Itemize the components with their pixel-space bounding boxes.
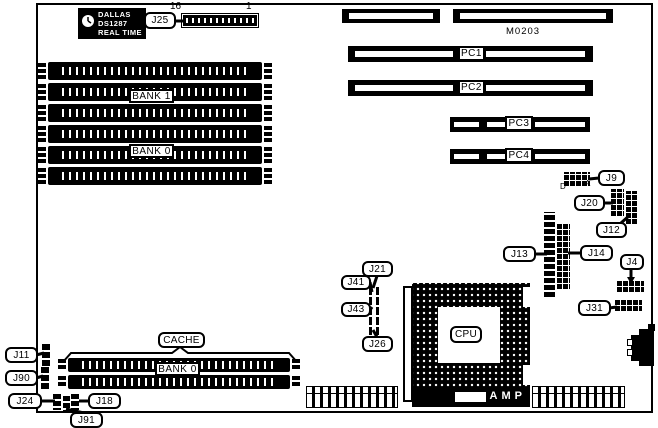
pin-1-label: 1 <box>246 1 252 12</box>
j14-label: J14 <box>580 245 613 261</box>
j43-label: J43 <box>341 302 371 317</box>
j4-arrow <box>627 277 635 284</box>
j26-label: J26 <box>362 336 393 352</box>
pin-16-label: 16 <box>170 1 181 12</box>
pc4-label: PC4 <box>505 148 533 163</box>
j31-label: J31 <box>578 300 611 316</box>
cpu-label: CPU <box>450 326 482 343</box>
motherboard-diagram: DALLAS DS1287 REAL TIME 16 1 J25 BANK 1 … <box>0 0 658 428</box>
pin-a-label: A <box>585 179 590 188</box>
j18-label: J18 <box>88 393 121 409</box>
j91-label: J91 <box>70 412 103 428</box>
j25-label: J25 <box>144 12 176 29</box>
model-label: M0203 <box>506 26 540 37</box>
bank0-label: BANK 0 <box>129 144 174 158</box>
cache-label: CACHE <box>158 332 205 348</box>
pc1-label: PC1 <box>458 46 485 61</box>
j9-label: J9 <box>598 170 625 186</box>
j20-label: J20 <box>574 195 605 211</box>
bank1-label: BANK 1 <box>129 89 174 103</box>
cache-brace <box>63 347 297 362</box>
pin-d-label: D <box>560 182 566 191</box>
cache-bank0-label: BANK 0 <box>155 362 200 376</box>
callout-pointers <box>0 0 658 428</box>
j11-label: J11 <box>5 347 38 363</box>
j41-label: J41 <box>341 275 371 290</box>
j24-label: J24 <box>8 393 42 409</box>
pc2-label: PC2 <box>458 80 485 95</box>
j12-label: J12 <box>596 222 627 238</box>
j90-label: J90 <box>5 370 38 386</box>
pc3-label: PC3 <box>505 116 533 131</box>
j13-label: J13 <box>503 246 536 262</box>
j4-label: J4 <box>620 254 644 270</box>
